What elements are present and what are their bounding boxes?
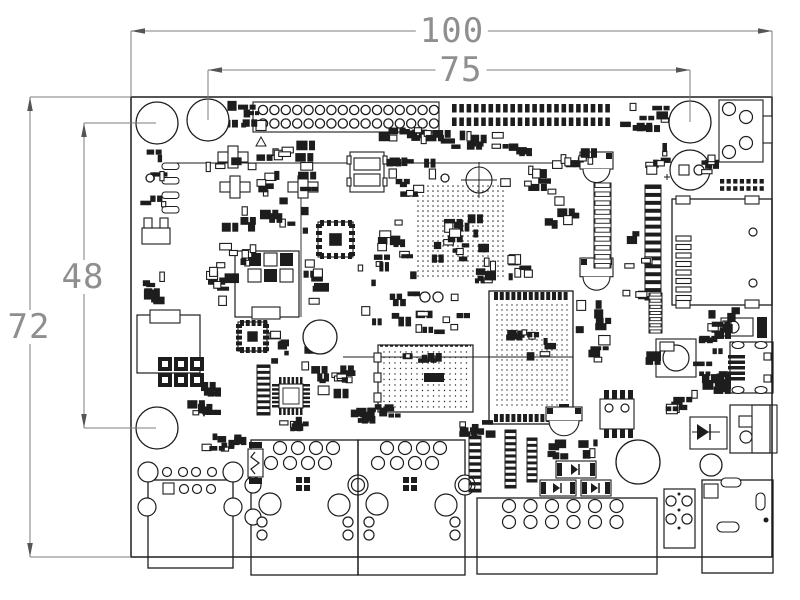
- smd-cluster-6: [620, 103, 669, 132]
- ethernet-jack-2: [358, 440, 475, 575]
- bottom-header-12pin: [477, 498, 657, 574]
- smd-cluster-26: [693, 330, 731, 393]
- smd-cluster-36: [646, 351, 661, 365]
- crystal-footprint: [142, 218, 170, 244]
- smd-cluster-4: [501, 143, 551, 191]
- pin-strip-4: [257, 365, 270, 415]
- fiducial-crosshair: [461, 162, 497, 198]
- pad-ladder-2: [649, 293, 662, 333]
- qfp-ic: [272, 377, 310, 415]
- smd-cluster-18: [202, 433, 246, 451]
- gpio-header-2x16: [253, 102, 439, 132]
- inductor-can: [656, 339, 696, 377]
- soic8-ic: [600, 390, 634, 438]
- dim-label-48: 48: [58, 260, 109, 294]
- fpc-connector: [645, 185, 661, 300]
- pad-ladder-1: [594, 183, 611, 268]
- smd-cluster-35: [351, 404, 401, 423]
- audio-jack: [719, 100, 772, 162]
- smd-cluster-11: [358, 262, 420, 327]
- micro-usb-connector: [728, 342, 773, 394]
- smd-cluster-29: [459, 420, 495, 438]
- smd-header-2x7: [720, 179, 764, 191]
- metal-can-3: [546, 407, 582, 436]
- smd-cluster-10: [374, 220, 413, 260]
- smd-cluster-27: [666, 390, 698, 413]
- qfn-ic-2: [236, 320, 269, 353]
- pin1-marker: [256, 137, 266, 146]
- dim-label-75: 75: [436, 53, 487, 87]
- pin-strip-1: [469, 436, 481, 492]
- smd-diode-1: [556, 461, 596, 478]
- transistor-2: [220, 176, 250, 198]
- dim-label-100: 100: [416, 14, 488, 48]
- smd-cluster-7: [646, 143, 671, 174]
- qfn-ic-1: [316, 220, 355, 259]
- sd-card-slot: [672, 196, 772, 308]
- smd-diode-2: [540, 480, 576, 496]
- smd-cluster-23: [490, 255, 532, 281]
- smd-cluster-3: [451, 131, 508, 150]
- usb-connector: [138, 462, 243, 568]
- dim-label-72: 72: [4, 310, 55, 344]
- smd-header-2x22: [452, 104, 610, 126]
- relay-footprint: [347, 152, 387, 192]
- diode-block: [690, 417, 727, 449]
- smd-cluster-33: [280, 417, 309, 431]
- smd-cluster-16: [207, 267, 239, 305]
- pin-strip-2: [505, 430, 516, 488]
- smd-cluster-14: [143, 272, 165, 304]
- pad-grid-3x2: [158, 357, 204, 387]
- smd-cluster-34: [337, 365, 354, 382]
- usb-otg-connector: [730, 405, 777, 453]
- pcb-dimension-drawing: 100 75 48 72: [0, 0, 800, 600]
- smd-cluster-15: [217, 243, 256, 267]
- smd-cluster-12: [304, 260, 329, 304]
- pin-strip-3: [527, 438, 537, 482]
- smd-cluster-5: [545, 160, 580, 229]
- soc-module: [489, 291, 573, 424]
- smd-diode-3: [581, 480, 611, 496]
- smd-cluster-28: [548, 439, 598, 459]
- bottom-connector-4pin: [664, 489, 695, 548]
- smd-cluster-24: [576, 300, 611, 362]
- wifi-module: [374, 345, 473, 412]
- pcb-drawing-canvas: [0, 0, 800, 600]
- dc-barrel-jack: [702, 478, 773, 573]
